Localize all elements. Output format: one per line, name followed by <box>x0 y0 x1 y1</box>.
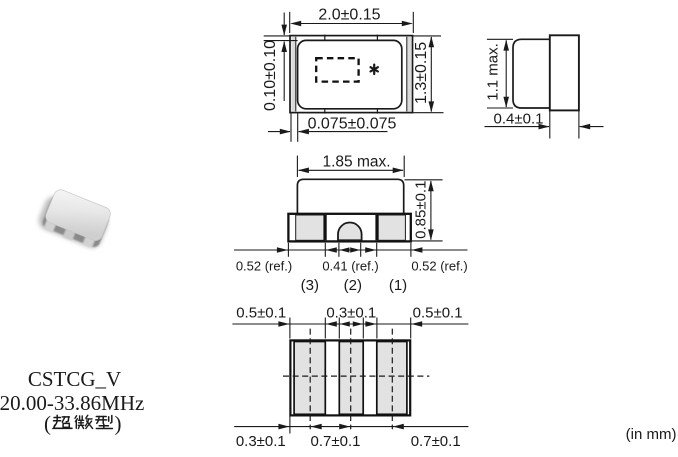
svg-text:0.41 (ref.): 0.41 (ref.) <box>322 258 378 273</box>
svg-text:2.0±0.15: 2.0±0.15 <box>318 7 380 24</box>
svg-text:(2): (2) <box>344 277 362 294</box>
svg-text:CSTCG_V: CSTCG_V <box>28 367 121 391</box>
svg-text:0.5±0.1: 0.5±0.1 <box>236 304 286 321</box>
svg-text:(in mm): (in mm) <box>626 426 677 443</box>
svg-text:0.52 (ref.): 0.52 (ref.) <box>411 258 467 273</box>
svg-text:20.00-33.86MHz: 20.00-33.86MHz <box>0 391 144 415</box>
svg-text:(: ( <box>44 412 51 436</box>
svg-text:0.4±0.1: 0.4±0.1 <box>494 110 544 127</box>
svg-text:1.85 max.: 1.85 max. <box>322 154 390 171</box>
svg-text:0.7±0.1: 0.7±0.1 <box>411 433 461 450</box>
svg-text:(1): (1) <box>389 277 407 294</box>
svg-text:0.5±0.1: 0.5±0.1 <box>413 304 463 321</box>
svg-text:): ) <box>115 412 122 436</box>
svg-text:0.85±0.1: 0.85±0.1 <box>412 181 429 239</box>
svg-text:0.075±0.075: 0.075±0.075 <box>308 116 397 133</box>
svg-text:0.52 (ref.): 0.52 (ref.) <box>236 258 292 273</box>
svg-text:1.1 max.: 1.1 max. <box>485 43 502 101</box>
svg-text:(3): (3) <box>301 277 319 294</box>
svg-text:0.7±0.1: 0.7±0.1 <box>311 433 361 450</box>
svg-text:0.10±0.10: 0.10±0.10 <box>262 40 279 111</box>
svg-text:0.3±0.1: 0.3±0.1 <box>326 304 376 321</box>
svg-text:1.3±0.15: 1.3±0.15 <box>413 42 430 104</box>
svg-text:0.3±0.1: 0.3±0.1 <box>236 433 286 450</box>
